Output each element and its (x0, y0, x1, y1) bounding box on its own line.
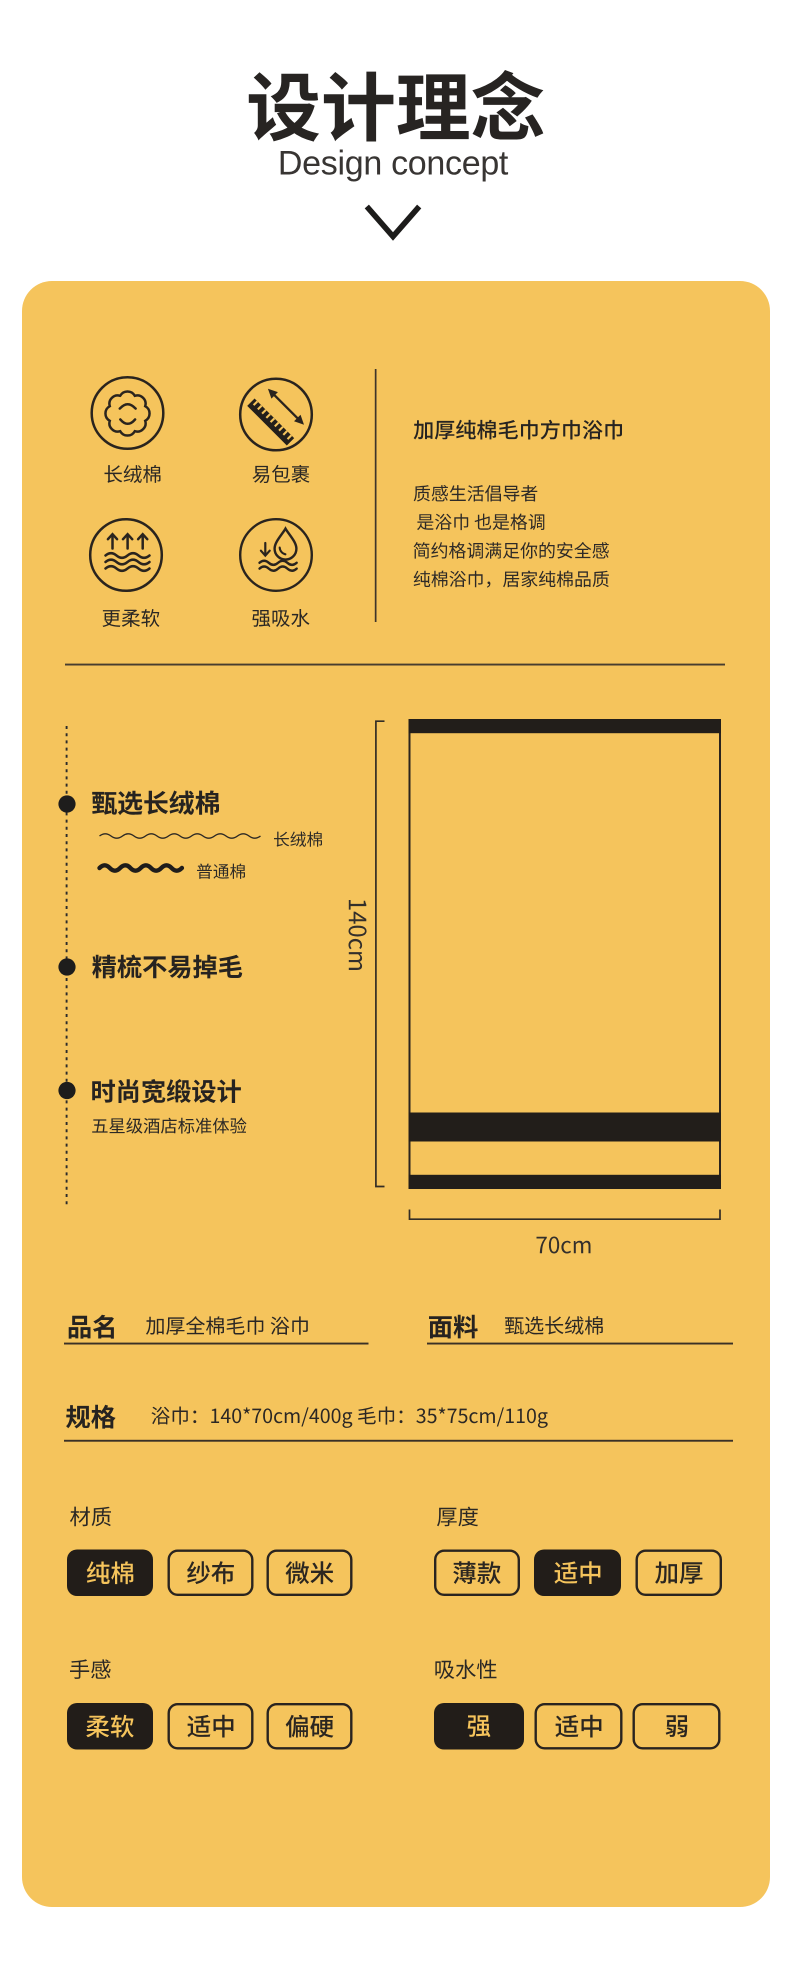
svg-text:Design concept: Design concept (278, 145, 509, 183)
